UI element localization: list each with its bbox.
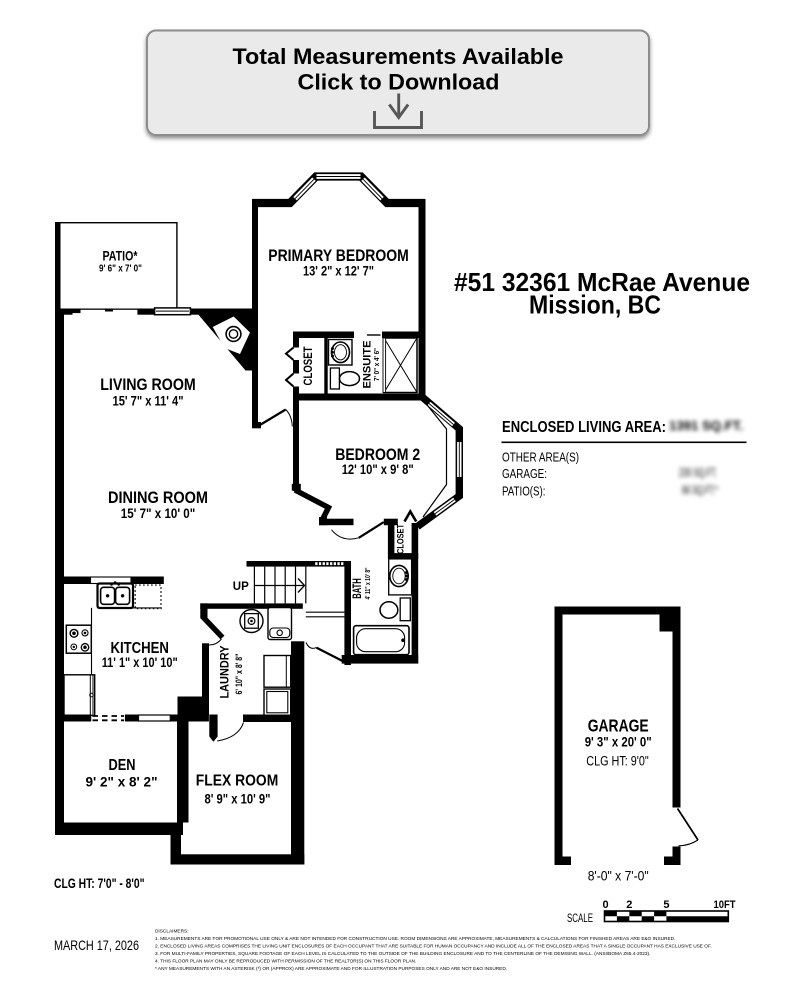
svg-text:CLOSET: CLOSET xyxy=(301,346,315,386)
svg-text:10FT: 10FT xyxy=(714,899,736,911)
svg-text:9' 6" x 7' 0": 9' 6" x 7' 0" xyxy=(99,263,142,275)
svg-text:2: 2 xyxy=(626,899,632,911)
svg-text:15' 7" x 11' 4": 15' 7" x 11' 4" xyxy=(113,393,184,409)
svg-text:CLG HT: 7'0" - 8'0": CLG HT: 7'0" - 8'0" xyxy=(54,876,145,891)
svg-text:4' 11" x 10' 8": 4' 11" x 10' 8" xyxy=(363,568,372,600)
svg-text:LIVING ROOM: LIVING ROOM xyxy=(100,375,196,394)
svg-text:13' 2" x 12' 7": 13' 2" x 12' 7" xyxy=(303,263,374,279)
svg-text:15' 7" x 10' 0": 15' 7" x 10' 0" xyxy=(121,505,196,521)
svg-text:GARAGE:: GARAGE: xyxy=(502,466,547,481)
svg-text:Click to Download: Click to Download xyxy=(298,70,500,95)
svg-text:6' 10" x 8' 8": 6' 10" x 8' 8" xyxy=(234,654,244,695)
svg-text:* ANY MEASUREMENTS WITH AN AST: * ANY MEASUREMENTS WITH AN ASTERISK (*) … xyxy=(155,966,507,972)
svg-text:2. ENCLOSED LIVING AREAS COMPR: 2. ENCLOSED LIVING AREAS COMPRISES THE L… xyxy=(155,944,712,950)
svg-text:ENSUITE: ENSUITE xyxy=(362,341,374,389)
svg-text:8' 9" x 10' 9": 8' 9" x 10' 9" xyxy=(205,792,271,807)
svg-text:FLEX ROOM: FLEX ROOM xyxy=(196,773,279,790)
svg-text:Total Measurements Available: Total Measurements Available xyxy=(233,44,564,69)
svg-text:DEN: DEN xyxy=(109,757,136,774)
svg-text:11' 1" x 10' 10": 11' 1" x 10' 10" xyxy=(102,655,178,670)
svg-text:1391 SQ.FT.: 1391 SQ.FT. xyxy=(669,418,743,433)
svg-text:PATIO(S):: PATIO(S): xyxy=(502,484,546,499)
svg-text:Mission, BC: Mission, BC xyxy=(529,290,661,320)
svg-text:5: 5 xyxy=(663,899,669,911)
svg-text:UP: UP xyxy=(233,579,249,593)
svg-text:230 SQ.FT.: 230 SQ.FT. xyxy=(679,468,717,480)
svg-text:9' 3" x 20' 0": 9' 3" x 20' 0" xyxy=(585,735,652,750)
svg-text:ENCLOSED LIVING AREA:: ENCLOSED LIVING AREA: xyxy=(502,419,666,436)
svg-text:0: 0 xyxy=(602,899,608,911)
svg-text:CLOSET: CLOSET xyxy=(396,524,407,554)
svg-text:GARAGE: GARAGE xyxy=(588,716,649,736)
svg-text:7' 0" x 4' 6": 7' 0" x 4' 6" xyxy=(374,348,381,381)
svg-text:12' 10" x 9' 8": 12' 10" x 9' 8" xyxy=(342,461,414,477)
svg-text:9' 2" x 8' 2": 9' 2" x 8' 2" xyxy=(86,775,158,790)
svg-text:8'-0" x 7'-0": 8'-0" x 7'-0" xyxy=(588,869,649,884)
svg-text:SCALE: SCALE xyxy=(567,913,593,925)
svg-text:1. MEASUREMENTS ARE FOR PROMOT: 1. MEASUREMENTS ARE FOR PROMOTIONAL USE … xyxy=(155,936,675,942)
svg-text:PATIO*: PATIO* xyxy=(103,249,139,264)
svg-text:3. FOR MULTI-FAMILY PROPERTIES: 3. FOR MULTI-FAMILY PROPERTIES, SQUARE F… xyxy=(155,951,650,957)
svg-text:OTHER AREA(S): OTHER AREA(S) xyxy=(502,450,579,465)
svg-text:DISCLAIMERS:: DISCLAIMERS: xyxy=(155,929,189,935)
svg-text:4. THIS FLOOR PLAN MAY ONLY BE: 4. THIS FLOOR PLAN MAY ONLY BE REPRODUCE… xyxy=(155,959,416,965)
svg-text:LAUNDRY: LAUNDRY xyxy=(218,646,232,699)
svg-text:CLG HT: 9'0": CLG HT: 9'0" xyxy=(586,754,649,769)
svg-text:66 SQ.FT.*: 66 SQ.FT.* xyxy=(682,485,718,497)
svg-text:MARCH 17, 2026: MARCH 17, 2026 xyxy=(54,937,139,953)
